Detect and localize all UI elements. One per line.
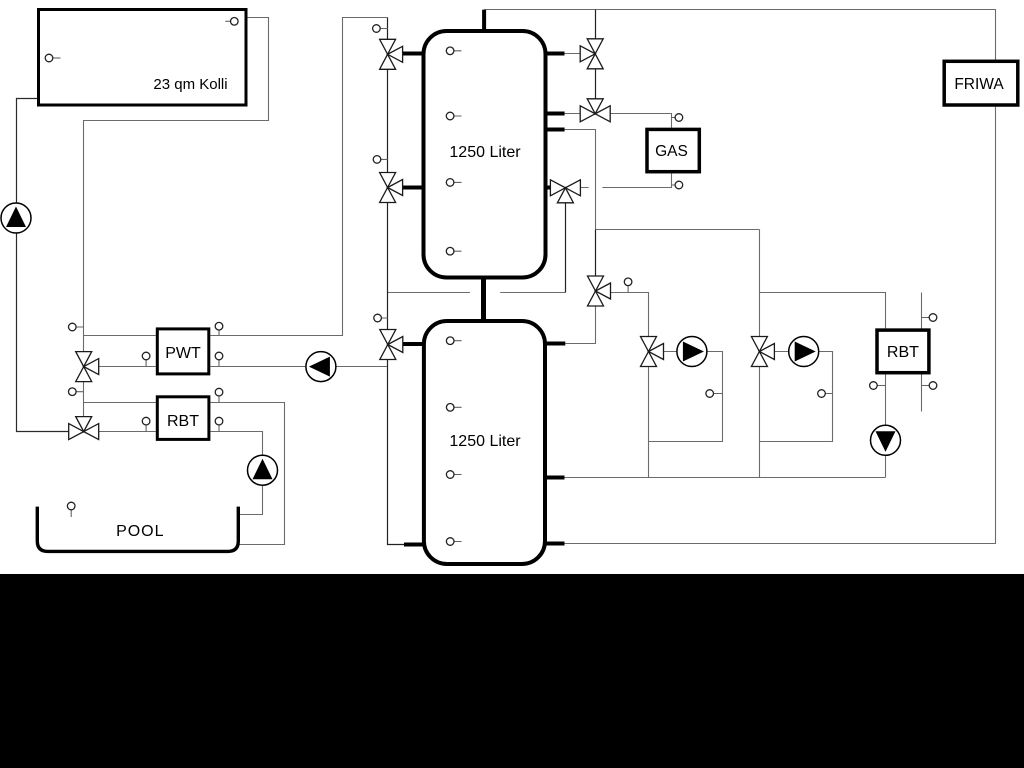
svg-text:1250 Liter: 1250 Liter <box>449 433 521 450</box>
svg-text:23 qm Kolli: 23 qm Kolli <box>153 76 227 93</box>
svg-text:GAS: GAS <box>655 143 688 160</box>
svg-text:1250 Liter: 1250 Liter <box>449 144 521 161</box>
svg-text:POOL: POOL <box>116 523 164 540</box>
svg-text:FRIWA: FRIWA <box>954 76 1004 93</box>
svg-text:RBT: RBT <box>167 413 199 430</box>
svg-text:PWT: PWT <box>165 345 201 362</box>
svg-text:RBT: RBT <box>887 344 919 361</box>
